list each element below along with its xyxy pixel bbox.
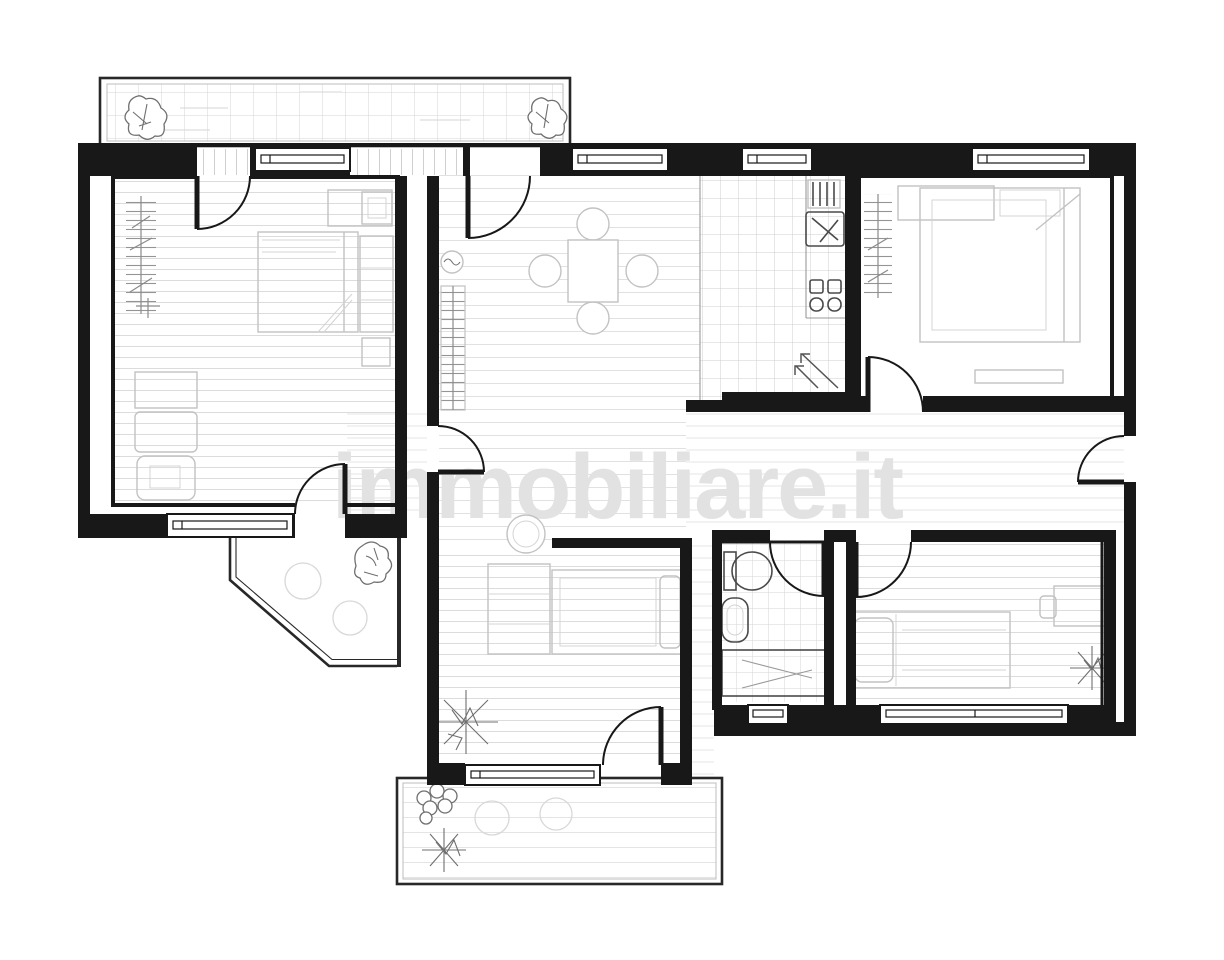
- chair: [529, 255, 561, 287]
- wall-bottom-left: [345, 514, 407, 538]
- wall-room-bottom-west: [427, 472, 439, 779]
- balcony-bottom: [397, 778, 722, 884]
- balcony-left: [230, 538, 399, 667]
- shelf: [898, 186, 994, 220]
- plant-icon: [355, 542, 392, 584]
- wall-right: [1124, 143, 1136, 436]
- door-sill-living-balcony: [352, 149, 463, 175]
- tile-floor-bathroom: [722, 542, 824, 702]
- wall-bedroom-br-east: [1104, 530, 1116, 722]
- window: [255, 148, 350, 171]
- window: [880, 705, 1068, 724]
- chair: [626, 255, 658, 287]
- shelf-inner: [1000, 190, 1060, 216]
- door-bedroom-top-right: [868, 357, 923, 412]
- wall-room-bottom-east: [680, 548, 692, 763]
- wall-kitchen-south: [686, 400, 845, 412]
- window: [167, 514, 293, 537]
- chair: [577, 302, 609, 334]
- wall-left: [78, 143, 90, 538]
- window: [742, 148, 812, 171]
- wall-hall-south: [824, 530, 856, 542]
- watermark-text: immobiliare.it: [332, 436, 903, 538]
- floor-plan-page: immobiliare.it: [0, 0, 1224, 960]
- wall-living-west: [427, 176, 439, 426]
- balcony-top: [100, 78, 570, 146]
- floor-plan-drawing: immobiliare.it: [0, 0, 1224, 960]
- outline-bedroom-top-right: [859, 176, 1112, 400]
- dining-table: [568, 240, 618, 302]
- wall-jamb: [463, 147, 470, 176]
- wall-hall-south: [712, 530, 770, 542]
- bedroom-top-right-furniture: [864, 186, 1080, 383]
- window: [748, 705, 788, 724]
- bed-fold: [1036, 188, 1080, 342]
- chair: [577, 208, 609, 240]
- bench: [975, 370, 1063, 383]
- wall-room-bottom-north: [552, 538, 692, 548]
- window: [465, 765, 600, 785]
- wall-bathroom-west: [712, 542, 722, 710]
- round-table: [333, 601, 367, 635]
- wall-top: [78, 147, 197, 176]
- wall-kitchen-east: [845, 161, 857, 412]
- window: [572, 148, 668, 171]
- door-sill-bedroom-balcony: [199, 149, 248, 175]
- round-table: [285, 563, 321, 599]
- wall-right: [1124, 482, 1136, 734]
- wall-kitchen-south-jog: [722, 392, 845, 400]
- balcony-top-tiles: [107, 84, 563, 141]
- floor-service-corridor: [692, 542, 714, 780]
- window: [972, 148, 1090, 171]
- wall-room-bottom-south: [427, 763, 465, 785]
- wall-room-bottom-south: [661, 763, 692, 785]
- wall-top-outer-face: [78, 143, 1136, 147]
